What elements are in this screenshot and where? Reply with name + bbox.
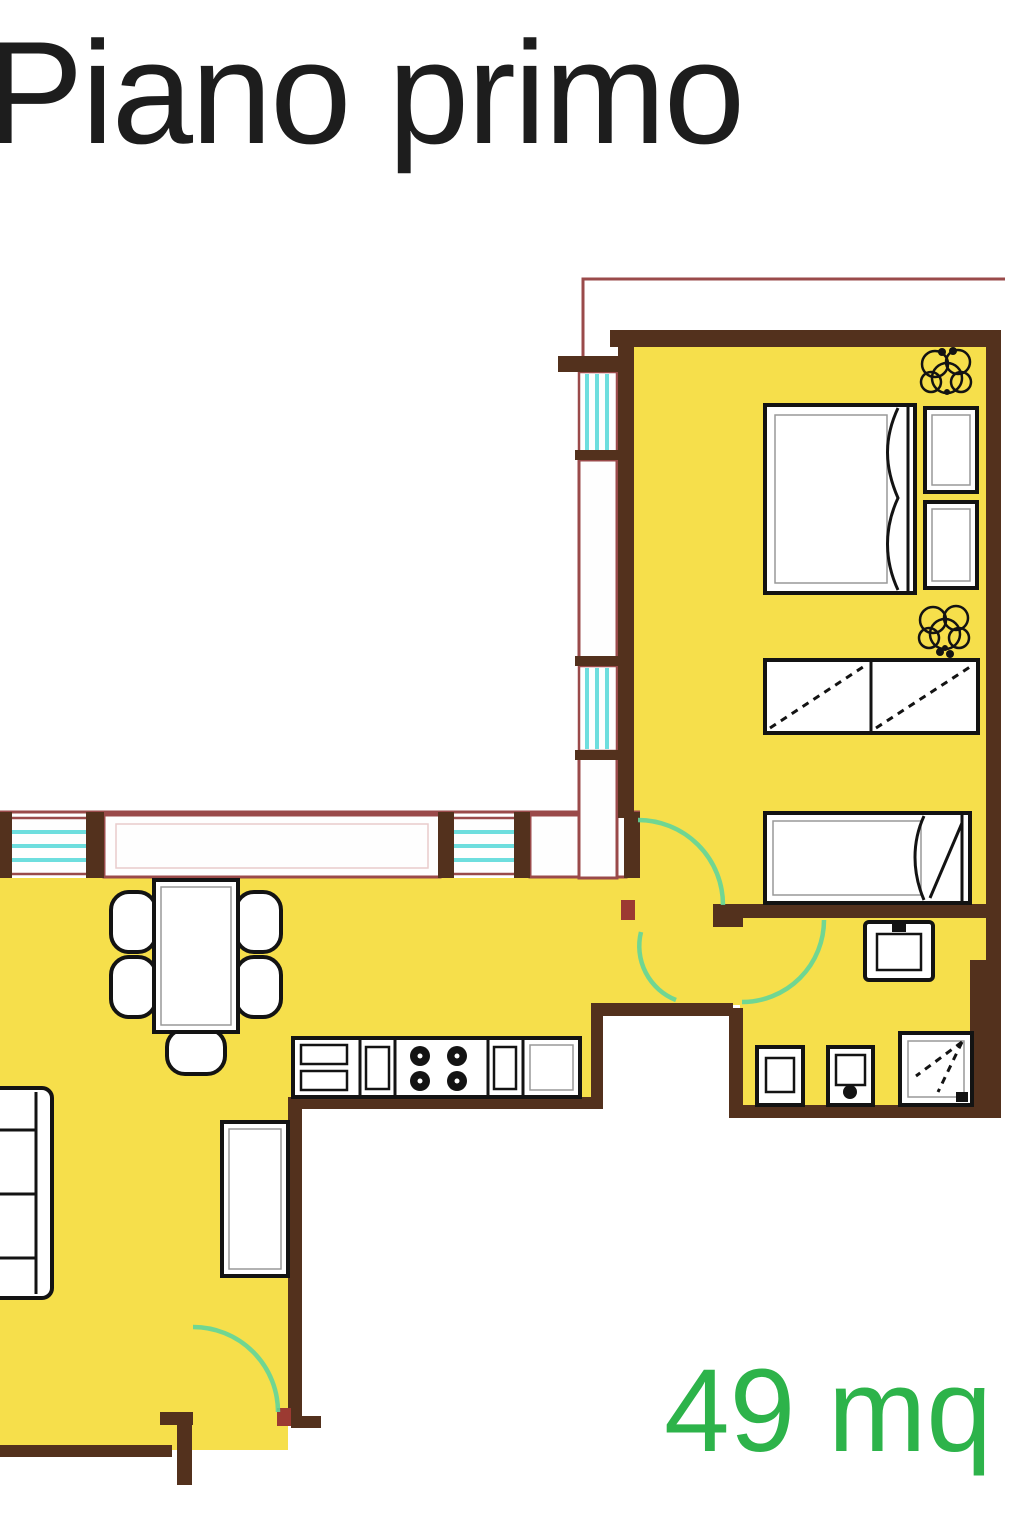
wall-bedroom-left (618, 347, 634, 818)
floor-plan-page: Piano primo (0, 0, 1024, 1536)
bidet (757, 1047, 803, 1105)
wardrobe (765, 660, 978, 733)
sofa (0, 1088, 52, 1298)
wall-bedroom-bottom (713, 904, 986, 918)
wall-hall-bottom (591, 1003, 733, 1016)
nightstand-bottom (925, 502, 977, 588)
window-living-mid (452, 818, 516, 874)
chair (167, 1029, 225, 1074)
wall-entry-left-jamb (160, 1412, 193, 1425)
wall-entry-right (288, 1097, 302, 1416)
window-living-left (2, 818, 90, 874)
floor-plan-drawing (0, 0, 1024, 1536)
window-bedroom-lower (579, 666, 617, 751)
wall-pier-upper (579, 460, 617, 658)
wall-entry-right-stub (291, 1416, 321, 1428)
chair (236, 957, 281, 1017)
wall-bedroom-right (986, 330, 1001, 1118)
hallway-floor (600, 878, 740, 1005)
wall-band-break-1 (575, 450, 619, 460)
window-panel-large (104, 815, 440, 877)
wall-band-jamb-1 (0, 812, 12, 878)
double-bed (765, 405, 915, 593)
cabinet (222, 1122, 288, 1276)
wall-band-break-2 (575, 656, 619, 666)
bedroom-windows (579, 372, 617, 878)
wall-hall-stub (591, 1003, 603, 1097)
window-bedroom-upper (579, 372, 617, 455)
wall-terrace-stub (558, 356, 618, 372)
wall-entry-left-stub (177, 1425, 192, 1485)
wall-bedroom-bottom-jamb (713, 918, 743, 927)
chair (111, 892, 156, 952)
wall-band-jamb-3 (438, 812, 454, 878)
chair (236, 892, 281, 952)
nightstand-top (925, 408, 977, 492)
wall-band-jamb-2 (86, 812, 104, 878)
area-label: 49 mq (664, 1352, 992, 1470)
wall-living-bottom (0, 1445, 172, 1457)
wall-bedroom-top (610, 330, 1000, 347)
shower (900, 1033, 972, 1105)
bathroom-sink (865, 922, 933, 980)
chair (111, 957, 156, 1017)
wall-band-break-3 (575, 750, 619, 760)
single-bed (765, 813, 970, 903)
wall-pier-lower (579, 758, 617, 878)
wall-band-jamb-5 (624, 812, 640, 878)
dining-table (154, 880, 238, 1032)
wall-bedroom-door-jamb (621, 900, 635, 920)
toilet (828, 1047, 873, 1105)
kitchen-counter (293, 1038, 580, 1097)
wall-bathroom-left (729, 1008, 743, 1105)
wall-band-jamb-4 (514, 812, 530, 878)
